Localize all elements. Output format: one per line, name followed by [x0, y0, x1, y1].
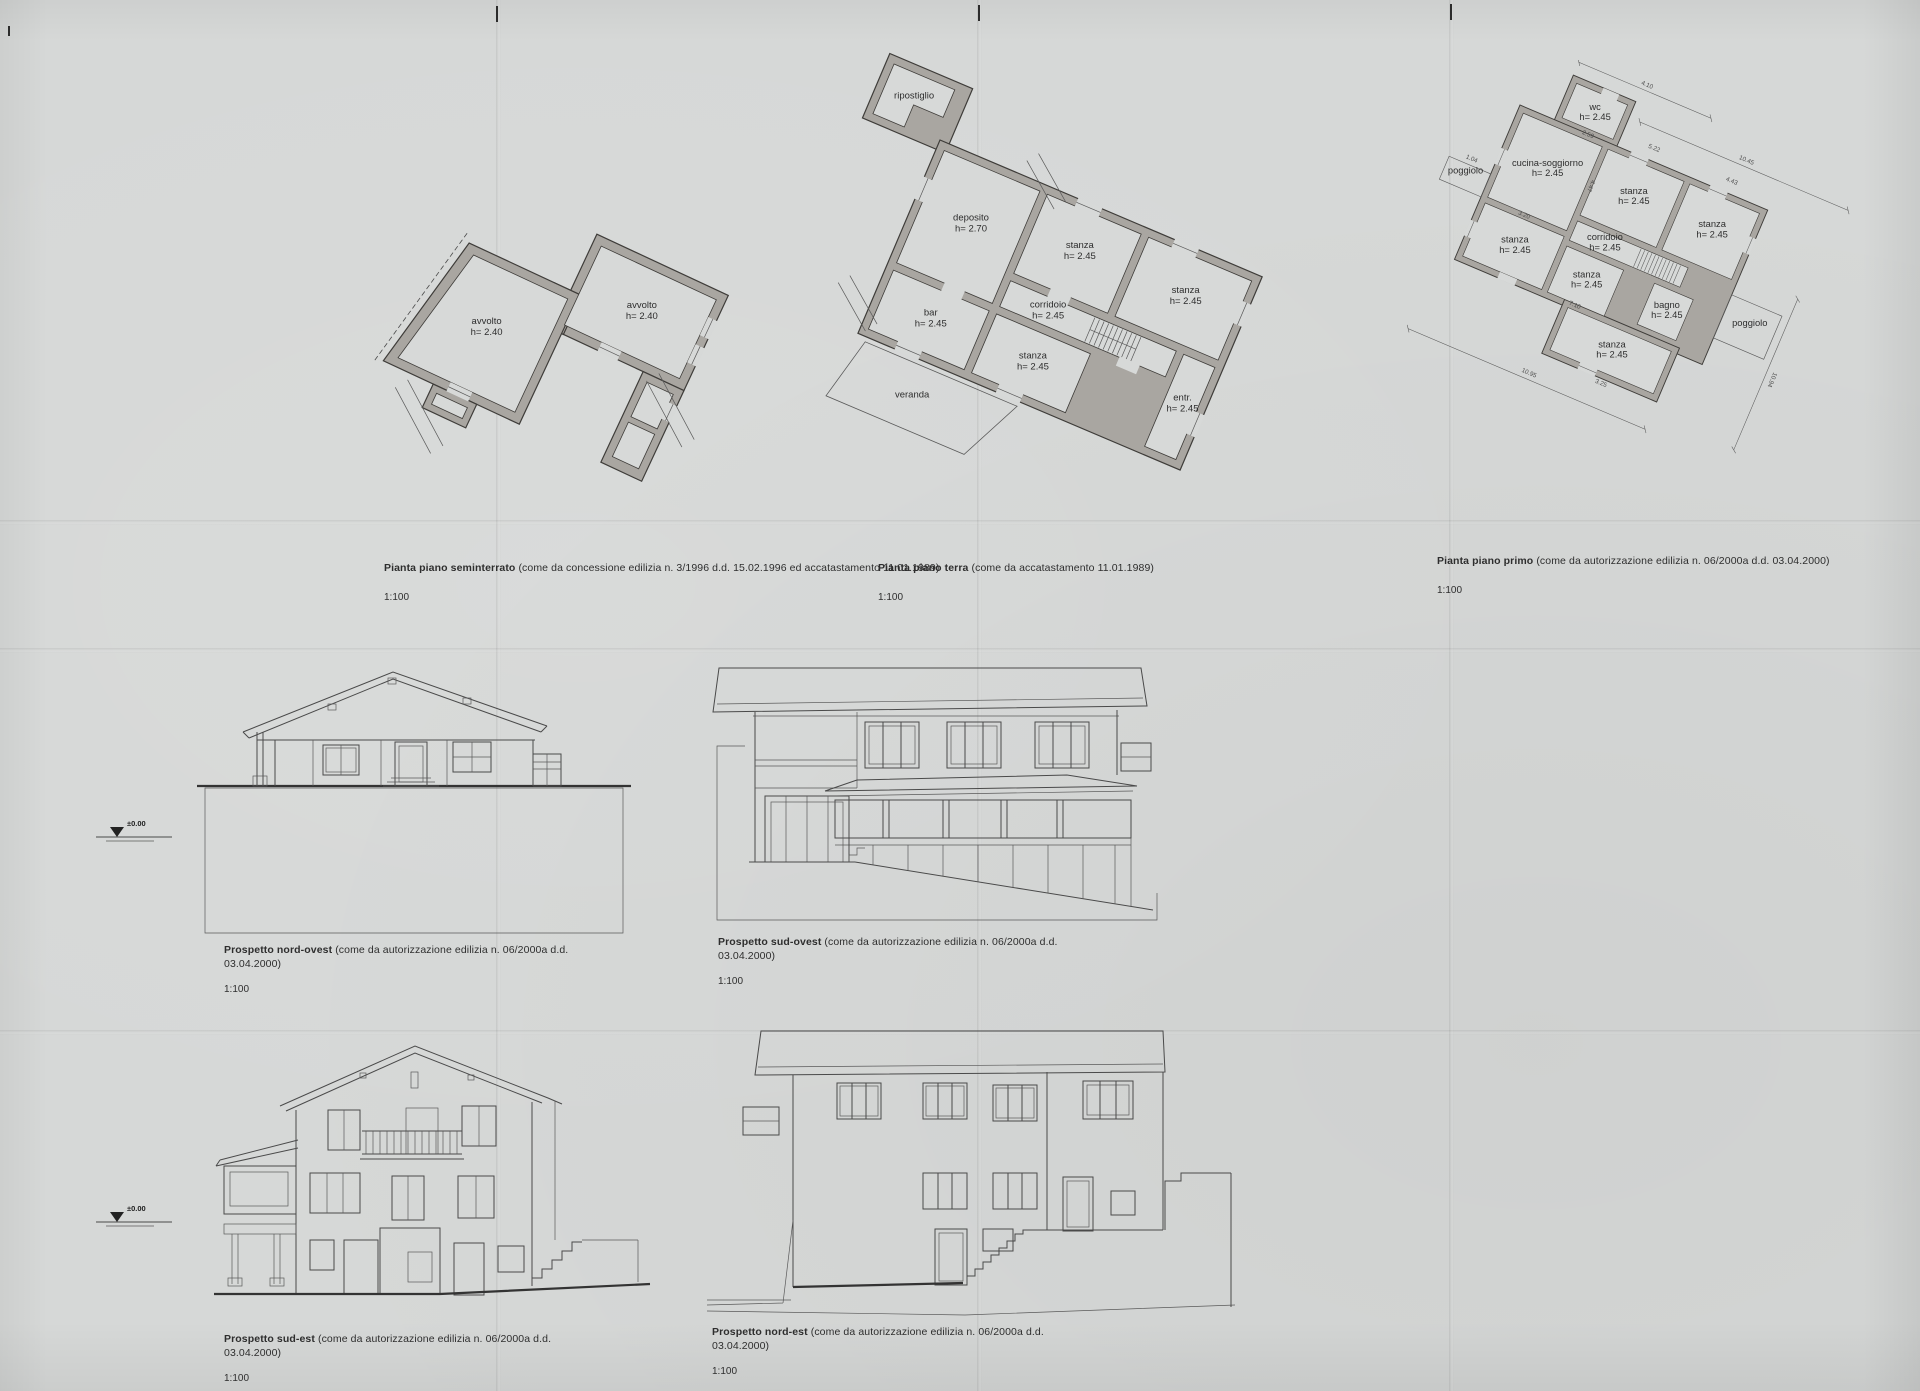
svg-text:4.43: 4.43	[1725, 176, 1739, 187]
caption-prospetto-nord-est: Prospetto nord-est(come da autorizzazion…	[712, 1326, 1064, 1353]
window	[923, 1083, 967, 1119]
caption-title: Pianta piano terra	[878, 562, 969, 574]
room-label: stanzah= 2.45	[1017, 351, 1049, 373]
stairs	[532, 1240, 638, 1286]
caption-subtitle: (come da accatastamento 11.01.1989)	[972, 562, 1155, 574]
scale-label: 1:100	[1437, 585, 1462, 596]
svg-text:5.22: 5.22	[1647, 143, 1661, 154]
window	[837, 1083, 881, 1119]
caption-title: Prospetto nord-ovest	[224, 944, 332, 956]
window	[1083, 1081, 1133, 1119]
facade	[296, 1101, 555, 1294]
roof	[280, 1046, 562, 1111]
elevation-sud-est-drawing	[210, 1028, 670, 1328]
caption-title: Pianta piano primo	[1437, 555, 1533, 567]
caption-prospetto-sud-ovest: Prospetto sud-ovest(come da autorizzazio…	[718, 936, 1070, 963]
svg-text:10.45: 10.45	[1738, 154, 1756, 167]
door	[383, 742, 439, 786]
terrain	[197, 786, 631, 933]
room-label: poggiolo	[1448, 165, 1483, 175]
room-label: veranda	[895, 390, 930, 401]
elevation-nord-est-drawing	[695, 1015, 1275, 1320]
caption-prospetto-nord-ovest: Prospetto nord-ovest(come da autorizzazi…	[224, 944, 576, 971]
plan-terra-drawing: ripostiglio depositoh= 2.70 stanzah= 2.4…	[800, 45, 1320, 545]
roof	[243, 672, 547, 738]
room-label: avvoltoh= 2.40	[626, 300, 658, 322]
ground	[214, 1284, 650, 1294]
window	[323, 745, 359, 775]
scale-label: 1:100	[384, 592, 409, 603]
fold-mark	[1450, 4, 1452, 20]
window	[865, 722, 919, 768]
caption-pianta-primo: Pianta piano primo(come da autorizzazion…	[1437, 555, 1867, 569]
roof	[755, 1031, 1165, 1075]
room-label: bagnoh= 2.45	[1651, 300, 1682, 320]
level-marker: ±0.00	[90, 1200, 190, 1236]
plan-walls	[800, 54, 1286, 471]
scale-label: 1:100	[878, 592, 903, 603]
window	[1035, 722, 1089, 768]
window	[462, 1106, 496, 1146]
svg-text:±0.00: ±0.00	[127, 819, 146, 828]
room-label: depositoh= 2.70	[953, 213, 989, 235]
ground	[707, 1173, 1235, 1315]
window	[310, 1173, 360, 1213]
lower-floor	[310, 1228, 524, 1295]
window	[993, 1085, 1037, 1121]
balcony	[360, 1108, 464, 1159]
scale-label: 1:100	[718, 976, 743, 987]
level-marker: ±0.00	[90, 815, 190, 851]
fold-mark	[8, 26, 10, 36]
room-label: stanzah= 2.45	[1571, 269, 1602, 289]
poggiolo-outline	[1439, 156, 1490, 197]
room-label: stanzah= 2.45	[1064, 240, 1096, 262]
room-label: poggiolo	[1732, 318, 1767, 328]
window	[328, 1110, 360, 1150]
room-label: corridoioh= 2.45	[1030, 300, 1066, 322]
window	[453, 742, 491, 772]
caption-subtitle: (come da autorizzazione edilizia n. 06/2…	[1536, 555, 1829, 567]
side-box	[1121, 743, 1151, 771]
roof	[713, 668, 1147, 716]
scale-label: 1:100	[712, 1366, 737, 1377]
elevation-sud-ovest-drawing	[705, 648, 1185, 943]
svg-text:±0.00: ±0.00	[127, 1204, 146, 1213]
room-label: stanzah= 2.45	[1596, 339, 1627, 359]
veranda-windows	[835, 800, 1131, 845]
plan-primo-drawing: 4.10 10.45 10.94 10.95 5.22 4.43 4.47 3.…	[1390, 60, 1870, 480]
window	[923, 1173, 967, 1209]
veranda-roof	[825, 775, 1137, 796]
room-label: ripostiglio	[894, 91, 934, 102]
window	[947, 722, 1001, 768]
facade	[755, 710, 1117, 862]
window	[993, 1173, 1037, 1209]
caption-subtitle: (come da concessione edilizia n. 3/1996 …	[518, 562, 939, 574]
fold-mark	[978, 5, 980, 21]
veranda-annex	[216, 1140, 298, 1286]
caption-prospetto-sud-est: Prospetto sud-est(come da autorizzazione…	[224, 1333, 576, 1360]
fold-mark	[496, 6, 498, 22]
side-annex	[533, 754, 561, 786]
room-label: stanzah= 2.45	[1499, 235, 1530, 255]
scale-label: 1:100	[224, 1373, 249, 1384]
drawing-sheet: avvoltoh= 2.40 avvoltoh= 2.40	[0, 0, 1920, 1391]
basement	[855, 838, 1153, 910]
window	[458, 1176, 494, 1218]
room-label: stanzah= 2.45	[1618, 186, 1649, 206]
door	[935, 1229, 1013, 1285]
plan-seminterrato-drawing: avvoltoh= 2.40 avvoltoh= 2.40	[320, 140, 740, 540]
room-label: stanzah= 2.45	[1696, 219, 1727, 239]
plan-walls	[372, 175, 728, 505]
caption-pianta-terra: Pianta piano terra(come da accatastament…	[878, 562, 1298, 576]
site-boundary	[717, 746, 1157, 920]
caption-title: Prospetto sud-est	[224, 1333, 315, 1345]
scale-label: 1:100	[224, 984, 249, 995]
caption-title: Pianta piano seminterrato	[384, 562, 515, 574]
svg-text:1.04: 1.04	[1465, 154, 1479, 165]
svg-text:10.95: 10.95	[1520, 367, 1538, 380]
room-label: stanzah= 2.45	[1170, 285, 1202, 307]
caption-title: Prospetto nord-est	[712, 1326, 808, 1338]
elevation-nord-ovest-drawing	[195, 648, 635, 943]
room-label: avvoltoh= 2.40	[471, 316, 503, 338]
wing	[1047, 1072, 1163, 1231]
garage	[749, 796, 865, 862]
caption-title: Prospetto sud-ovest	[718, 936, 821, 948]
svg-text:10.94: 10.94	[1765, 371, 1778, 389]
window	[392, 1176, 424, 1220]
stairs	[967, 1230, 1047, 1283]
room-label: corridoioh= 2.45	[1587, 232, 1623, 252]
